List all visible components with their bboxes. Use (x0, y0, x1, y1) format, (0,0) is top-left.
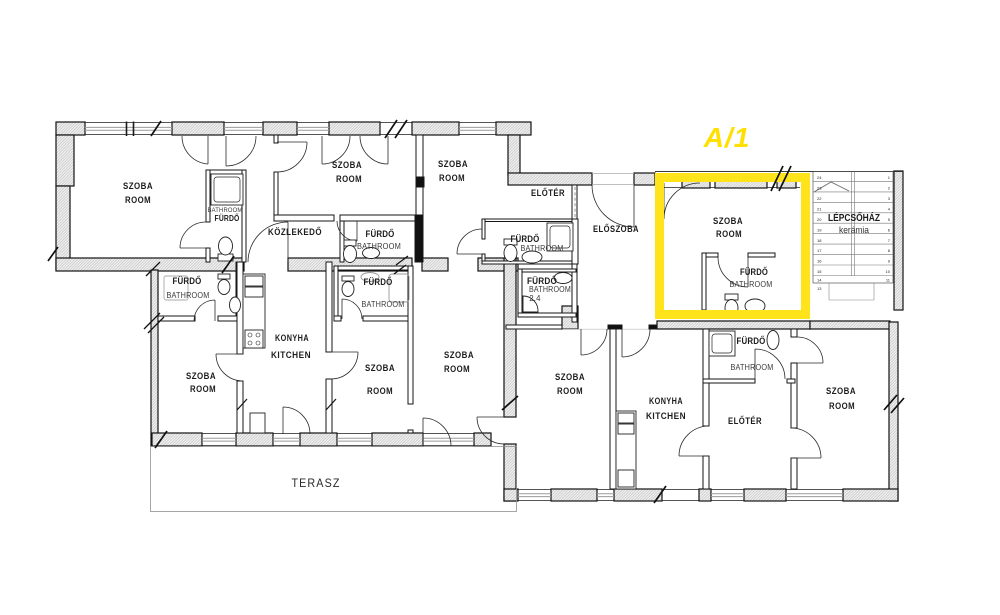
svg-text:ELŐSZOBA: ELŐSZOBA (593, 223, 639, 234)
svg-text:24: 24 (817, 175, 822, 180)
svg-text:FÜRDŐ: FÜRDŐ (364, 276, 393, 287)
svg-text:KÖZLEKEDŐ: KÖZLEKEDŐ (268, 226, 322, 237)
svg-text:ROOM: ROOM (190, 384, 216, 394)
svg-text:ROOM: ROOM (557, 386, 583, 396)
svg-text:KONYHA: KONYHA (275, 333, 309, 343)
svg-text:SZOBA: SZOBA (365, 363, 395, 373)
svg-text:ROOM: ROOM (439, 173, 465, 183)
svg-text:FÜRDŐ: FÜRDŐ (215, 214, 240, 223)
svg-text:BATHROOM: BATHROOM (730, 280, 773, 289)
svg-text:BATHROOM: BATHROOM (362, 300, 405, 309)
svg-text:BATHROOM: BATHROOM (521, 244, 564, 253)
svg-text:LÉPCSŐHÁZ: LÉPCSŐHÁZ (828, 211, 880, 224)
svg-text:16: 16 (817, 259, 822, 264)
svg-text:SZOBA: SZOBA (332, 160, 362, 170)
svg-text:FÜRDŐ: FÜRDŐ (173, 275, 202, 286)
svg-text:15: 15 (817, 269, 822, 274)
svg-text:FÜRDŐ: FÜRDŐ (366, 228, 395, 239)
svg-text:TERASZ: TERASZ (292, 477, 341, 490)
svg-text:BATHROOM: BATHROOM (208, 207, 243, 214)
svg-text:BATHROOM: BATHROOM (529, 285, 571, 294)
svg-text:14: 14 (817, 278, 822, 283)
svg-text:ELŐTÉR: ELŐTÉR (531, 187, 565, 198)
svg-text:21: 21 (817, 206, 822, 211)
svg-text:SZOBA: SZOBA (186, 371, 216, 381)
svg-text:20: 20 (817, 217, 822, 222)
svg-text:KONYHA: KONYHA (649, 396, 683, 406)
svg-text:10: 10 (886, 269, 891, 274)
svg-text:ROOM: ROOM (336, 174, 362, 184)
svg-text:ROOM: ROOM (829, 401, 855, 411)
svg-text:SZOBA: SZOBA (826, 386, 856, 396)
svg-text:SZOBA: SZOBA (555, 372, 585, 382)
svg-text:ROOM: ROOM (716, 229, 742, 239)
svg-text:FÜRDŐ: FÜRDŐ (740, 266, 768, 277)
svg-text:A/1: A/1 (703, 122, 751, 153)
svg-text:19: 19 (817, 227, 822, 232)
svg-text:BATHROOM: BATHROOM (357, 242, 401, 251)
svg-text:13: 13 (817, 286, 822, 291)
svg-text:23: 23 (817, 186, 822, 191)
svg-text:ROOM: ROOM (125, 195, 151, 205)
svg-text:KITCHEN: KITCHEN (271, 350, 311, 360)
svg-text:SZOBA: SZOBA (438, 159, 468, 169)
svg-text:kerámia: kerámia (839, 225, 870, 236)
svg-text:22: 22 (817, 196, 822, 201)
svg-text:BATHROOM: BATHROOM (167, 291, 210, 300)
svg-text:FÜRDŐ: FÜRDŐ (511, 233, 540, 244)
svg-text:ELŐTÉR: ELŐTÉR (728, 415, 762, 426)
svg-text:KITCHEN: KITCHEN (646, 411, 686, 421)
svg-text:FÜRDŐ: FÜRDŐ (737, 335, 766, 346)
svg-text:SZOBA: SZOBA (123, 181, 153, 191)
svg-text:ROOM: ROOM (444, 364, 470, 374)
svg-text:18: 18 (817, 238, 822, 243)
svg-text:17: 17 (817, 248, 822, 253)
svg-text:ROOM: ROOM (367, 386, 393, 396)
svg-text:SZOBA: SZOBA (713, 216, 743, 226)
svg-text:SZOBA: SZOBA (444, 350, 474, 360)
svg-text:2.4: 2.4 (529, 294, 541, 303)
svg-text:BATHROOM: BATHROOM (731, 363, 774, 372)
